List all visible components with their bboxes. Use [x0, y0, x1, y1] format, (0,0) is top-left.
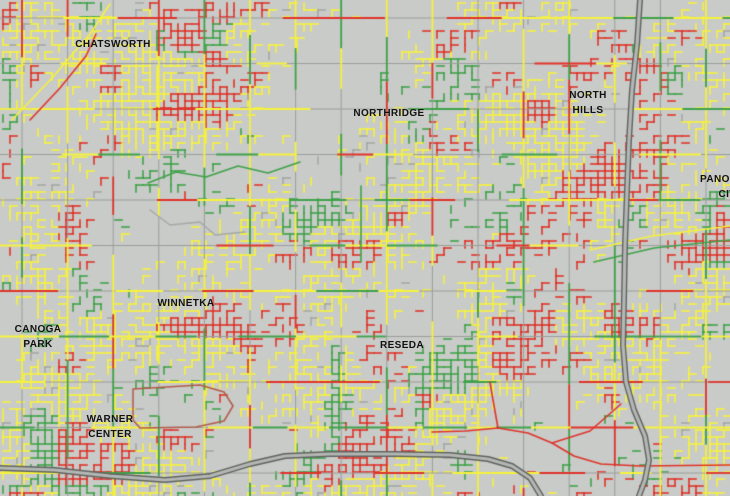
- label-text: NORTHRIDGE: [353, 106, 424, 121]
- label-text: PARK: [15, 337, 62, 352]
- label-text: CENTER: [87, 427, 134, 442]
- map-label-reseda: RESEDA: [380, 338, 424, 353]
- map-label-chatsworth: CHATSWORTH: [75, 37, 150, 52]
- label-text: WARNER: [87, 412, 134, 427]
- label-text: NORTH: [569, 88, 607, 103]
- label-text: WINNETKA: [157, 296, 214, 311]
- map-viewport: CHATSWORTH NORTHRIDGE NORTH HILLS PANORA…: [0, 0, 730, 496]
- map-label-northridge: NORTHRIDGE: [353, 106, 424, 121]
- label-text: CITY: [700, 187, 730, 202]
- label-text: CANOGA: [15, 322, 62, 337]
- map-label-winnetka: WINNETKA: [157, 296, 214, 311]
- label-text: CHATSWORTH: [75, 37, 150, 52]
- map-label-panorama-city: PANORAMA CITY: [700, 172, 730, 202]
- map-label-north-hills: NORTH HILLS: [569, 88, 607, 118]
- map-label-warner-center: WARNER CENTER: [87, 412, 134, 442]
- map-label-canoga-park: CANOGA PARK: [15, 322, 62, 352]
- label-text: RESEDA: [380, 338, 424, 353]
- label-text: PANORAMA: [700, 172, 730, 187]
- label-text: HILLS: [569, 103, 607, 118]
